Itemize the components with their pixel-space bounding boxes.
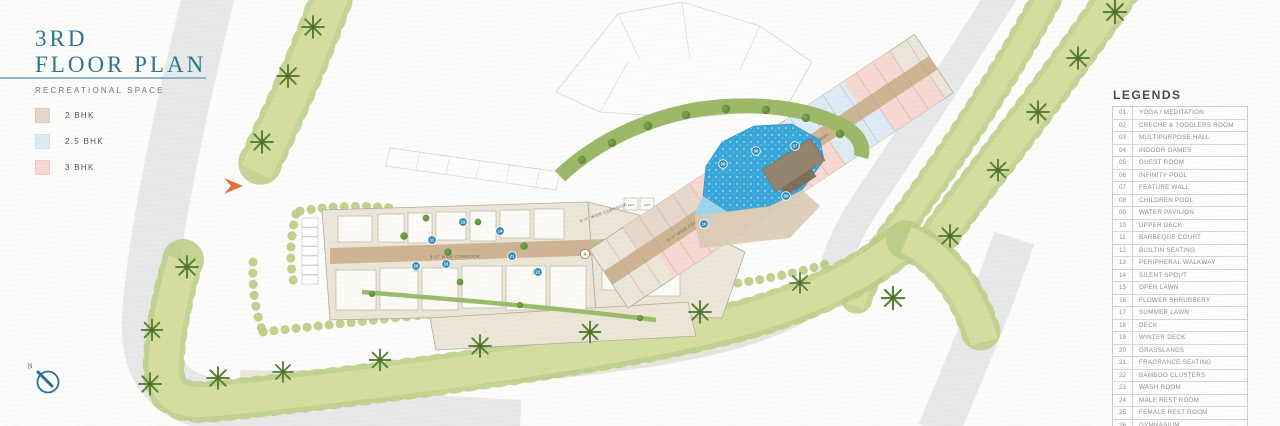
legend-row: 24 MALE REST ROOM	[1113, 395, 1247, 408]
legend-row: 18 DECK	[1113, 320, 1247, 333]
legend-number: 09	[1113, 207, 1133, 219]
legend-row: 01 YOGA / MEDITATION	[1113, 107, 1247, 120]
legend-row: 17 SUMMER LAWN	[1113, 307, 1247, 320]
legend-number: 19	[1113, 332, 1133, 344]
legend-row: 04 INDOOR GAMES	[1113, 145, 1247, 158]
legend-label: CRECHE & TODDLERS ROOM	[1133, 122, 1234, 129]
plan-marker-number: 10	[702, 222, 707, 227]
plan-marker-number: 08	[721, 162, 726, 167]
lift-label: LIFT	[628, 203, 634, 207]
legend-label: WINTER DECK	[1133, 334, 1186, 341]
legend-number: 03	[1113, 132, 1133, 144]
legend-row: 03 MULTIPURPOSE HALL	[1113, 132, 1247, 145]
legend-number: 13	[1113, 257, 1133, 269]
legend-row: 25 FEMALE REST ROOM	[1113, 407, 1247, 420]
unit-legend-row: 2 BHK	[35, 108, 104, 123]
legend-number: 18	[1113, 320, 1133, 332]
unit-legend-row: 3 BHK	[35, 160, 104, 175]
plan-marker-number: 11	[430, 238, 435, 243]
legend-label: YOGA / MEDITATION	[1133, 109, 1204, 116]
page-title: 3RD FLOOR PLAN	[35, 26, 206, 78]
legend-row: 09 WATER PAVILION	[1113, 207, 1247, 220]
unit-legend-row: 2.5 BHK	[35, 134, 104, 149]
legend-number: 23	[1113, 382, 1133, 394]
legend-number: 17	[1113, 307, 1133, 319]
plan-marker-number: 07	[793, 144, 798, 149]
legend-label: CHILDREN POOL	[1133, 197, 1193, 204]
legend-label: GUEST ROOM	[1133, 159, 1184, 166]
legend-row: 11 BARBEQUE COURT	[1113, 232, 1247, 245]
floor-plan-page: LIFT LIFT 6'-0" WIDE CORRIDOR LIFT LOBBY…	[0, 0, 1280, 426]
legend-label: FEMALE REST ROOM	[1133, 409, 1208, 416]
legends-table: 01 YOGA / MEDITATION 02 CRECHE & TODDLER…	[1112, 106, 1248, 426]
plan-marker-number: 15	[461, 220, 466, 225]
legend-row: 16 FLOWER SHRUBBERY	[1113, 295, 1247, 308]
legend-number: 26	[1113, 420, 1133, 426]
legend-label: MALE REST ROOM	[1133, 397, 1199, 404]
legend-label: BAMBOO CLUSTERS	[1133, 372, 1205, 379]
plan-marker-number: 06	[754, 149, 759, 154]
title-divider	[0, 77, 206, 79]
unit-color-swatch	[35, 108, 50, 123]
unit-legend-label: 2 BHK	[65, 111, 95, 120]
plan-marker-number: 14	[498, 229, 503, 234]
legend-label: GYMNASIUM	[1133, 422, 1180, 426]
legend-label: OPEN LAWN	[1133, 284, 1179, 291]
legend-label: MULTIPURPOSE HALL	[1133, 134, 1210, 141]
legend-row: 06 INFINITY POOL	[1113, 170, 1247, 183]
legend-row: 02 CRECHE & TODDLERS ROOM	[1113, 120, 1247, 133]
legend-number: 16	[1113, 295, 1133, 307]
legend-row: 15 OPEN LAWN	[1113, 282, 1247, 295]
plan-marker-number: 16	[444, 262, 449, 267]
legend-row: 13 PERIPHERAL WALKWAY	[1113, 257, 1247, 270]
legend-row: 08 CHILDREN POOL	[1113, 195, 1247, 208]
legends-panel: LEGENDS 01 YOGA / MEDITATION 02 CRECHE &…	[1112, 88, 1248, 426]
legend-row: 07 FEATURE WALL	[1113, 182, 1247, 195]
legend-row: 26 GYMNASIUM	[1113, 420, 1247, 426]
legend-number: 22	[1113, 370, 1133, 382]
legend-label: INDOOR GAMES	[1133, 147, 1191, 154]
legend-label: GRASSLANDS	[1133, 347, 1184, 354]
north-compass-icon: N	[26, 361, 59, 393]
unit-legend-label: 3 BHK	[65, 163, 95, 172]
legend-label: FRAGRANCE SEATING	[1133, 359, 1211, 366]
legend-label: INFINITY POOL	[1133, 172, 1187, 179]
entry-arrow-icon	[224, 178, 243, 194]
legend-number: 15	[1113, 282, 1133, 294]
lift-label: LIFT	[644, 203, 650, 207]
legend-label: FEATURE WALL	[1133, 184, 1189, 191]
legend-number: 08	[1113, 195, 1133, 207]
legend-number: 12	[1113, 245, 1133, 257]
legend-number: 07	[1113, 182, 1133, 194]
legend-label: PERIPHERAL WALKWAY	[1133, 259, 1216, 266]
corridor-label: 6'-0" WIDE CORRIDOR	[430, 254, 480, 260]
legend-label: DECK	[1133, 322, 1157, 329]
legend-label: WASH ROOM	[1133, 384, 1181, 391]
legend-number: 21	[1113, 357, 1133, 369]
legend-row: 22 BAMBOO CLUSTERS	[1113, 370, 1247, 383]
legend-label: BUILTIN SEATING	[1133, 247, 1195, 254]
legend-row: 14 SILENT SPOUT	[1113, 270, 1247, 283]
north-label: N	[26, 361, 35, 371]
legend-row: 21 FRAGRANCE SEATING	[1113, 357, 1247, 370]
legend-number: 02	[1113, 120, 1133, 132]
legend-label: SILENT SPOUT	[1133, 272, 1187, 279]
legend-label: WATER PAVILION	[1133, 209, 1194, 216]
legend-number: 20	[1113, 345, 1133, 357]
title-block: 3RD FLOOR PLAN	[35, 26, 206, 78]
legend-number: 24	[1113, 395, 1133, 407]
legend-label: UPPER DECK	[1133, 222, 1182, 229]
legend-number: 06	[1113, 170, 1133, 182]
legend-number: 01	[1113, 107, 1133, 119]
legend-row: 05 GUEST ROOM	[1113, 157, 1247, 170]
unit-color-swatch	[35, 160, 50, 175]
legend-row: 12 BUILTIN SEATING	[1113, 245, 1247, 258]
legend-number: 05	[1113, 157, 1133, 169]
legend-label: BARBEQUE COURT	[1133, 234, 1201, 241]
legend-number: 04	[1113, 145, 1133, 157]
legend-label: FLOWER SHRUBBERY	[1133, 297, 1210, 304]
unit-legend-label: 2.5 BHK	[65, 137, 104, 146]
legends-title: LEGENDS	[1113, 88, 1248, 102]
plan-marker-number: 21	[510, 254, 515, 259]
legend-row: 23 WASH ROOM	[1113, 382, 1247, 395]
plan-marker-number: 22	[536, 270, 541, 275]
legend-number: 14	[1113, 270, 1133, 282]
legend-row: 19 WINTER DECK	[1113, 332, 1247, 345]
legend-row: 20 GRASSLANDS	[1113, 345, 1247, 358]
plan-marker-number: 09	[784, 194, 789, 199]
legend-number: 25	[1113, 407, 1133, 419]
legend-number: 10	[1113, 220, 1133, 232]
legend-label: SUMMER LAWN	[1133, 309, 1189, 316]
block-a-label: A	[583, 252, 586, 257]
unit-color-swatch	[35, 134, 50, 149]
plan-marker-number: 20	[414, 264, 419, 269]
page-subtitle: RECREATIONAL SPACE	[35, 86, 165, 95]
unit-type-legend: 2 BHK 2.5 BHK 3 BHK	[35, 108, 104, 186]
legend-number: 11	[1113, 232, 1133, 244]
legend-row: 10 UPPER DECK	[1113, 220, 1247, 233]
